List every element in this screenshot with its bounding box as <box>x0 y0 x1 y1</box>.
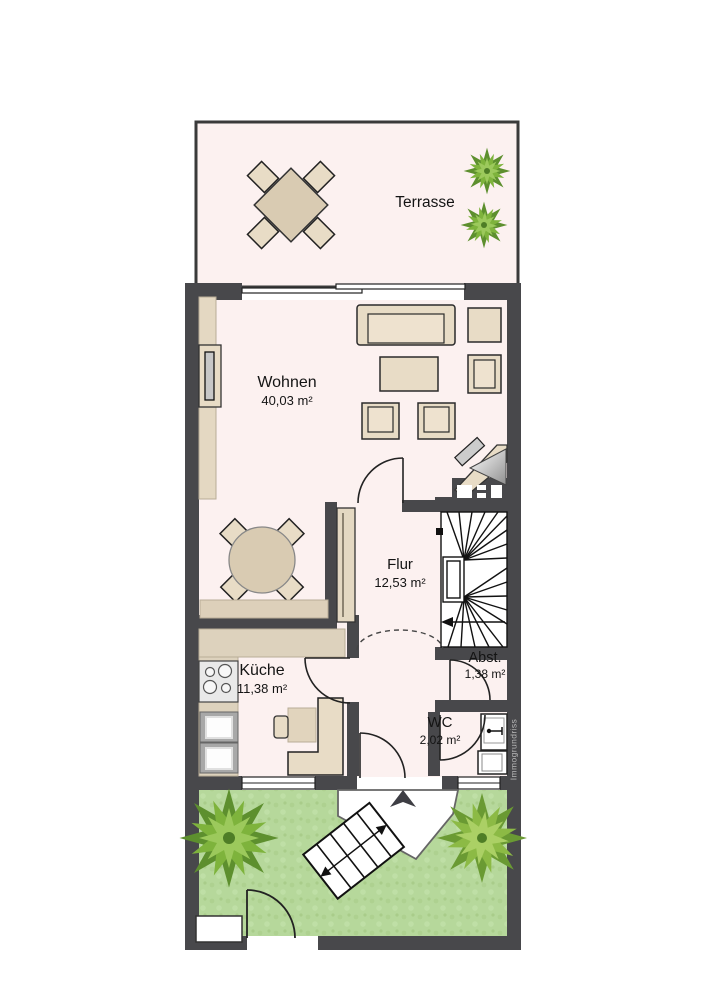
side-table-icon <box>468 308 501 342</box>
watermark-text: Immogrundriss <box>509 713 520 787</box>
floor-plan: Terrasse Wohnen 40,03 m² Flur 12,53 m² K… <box>0 0 706 1000</box>
toilet-icon <box>478 751 507 774</box>
room-label-wc: WC 2,02 m² <box>408 714 472 748</box>
dishwasher-icon <box>200 743 238 773</box>
armchair-icon <box>362 403 399 439</box>
room-label-kueche: Küche 11,38 m² <box>205 661 319 697</box>
dining-table-icon <box>220 519 304 602</box>
armchair-icon <box>468 355 501 393</box>
room-label-wohnen: Wohnen 40,03 m² <box>230 373 344 409</box>
room-name: Abst. <box>455 649 515 667</box>
window <box>458 777 500 789</box>
room-name: Flur <box>355 556 445 575</box>
room-name: Wohnen <box>230 373 344 393</box>
room-name: WC <box>408 714 472 733</box>
stairs-icon <box>436 512 507 647</box>
room-name: Terrasse <box>380 193 470 212</box>
room-area: 2,02 m² <box>408 733 472 748</box>
sofa-icon <box>357 305 455 345</box>
wardrobe-icon <box>337 508 355 622</box>
room-area: 11,38 m² <box>205 681 319 697</box>
terrace-table-icon <box>247 161 334 248</box>
oven-icon <box>200 712 238 742</box>
room-name: Küche <box>205 661 319 681</box>
room-area: 1,38 m² <box>455 667 515 682</box>
window <box>242 777 315 789</box>
coffee-table-icon <box>380 357 438 391</box>
plan-svg <box>0 0 706 1000</box>
room-label-terrasse: Terrasse <box>380 193 470 212</box>
garden-step <box>196 916 242 942</box>
room-label-flur: Flur 12,53 m² <box>355 556 445 591</box>
armchair-icon <box>418 403 455 439</box>
lowboard-icon <box>200 600 328 618</box>
room-area: 12,53 m² <box>355 575 445 591</box>
room-label-abst: Abst. 1,38 m² <box>455 649 515 682</box>
room-area: 40,03 m² <box>230 393 344 409</box>
